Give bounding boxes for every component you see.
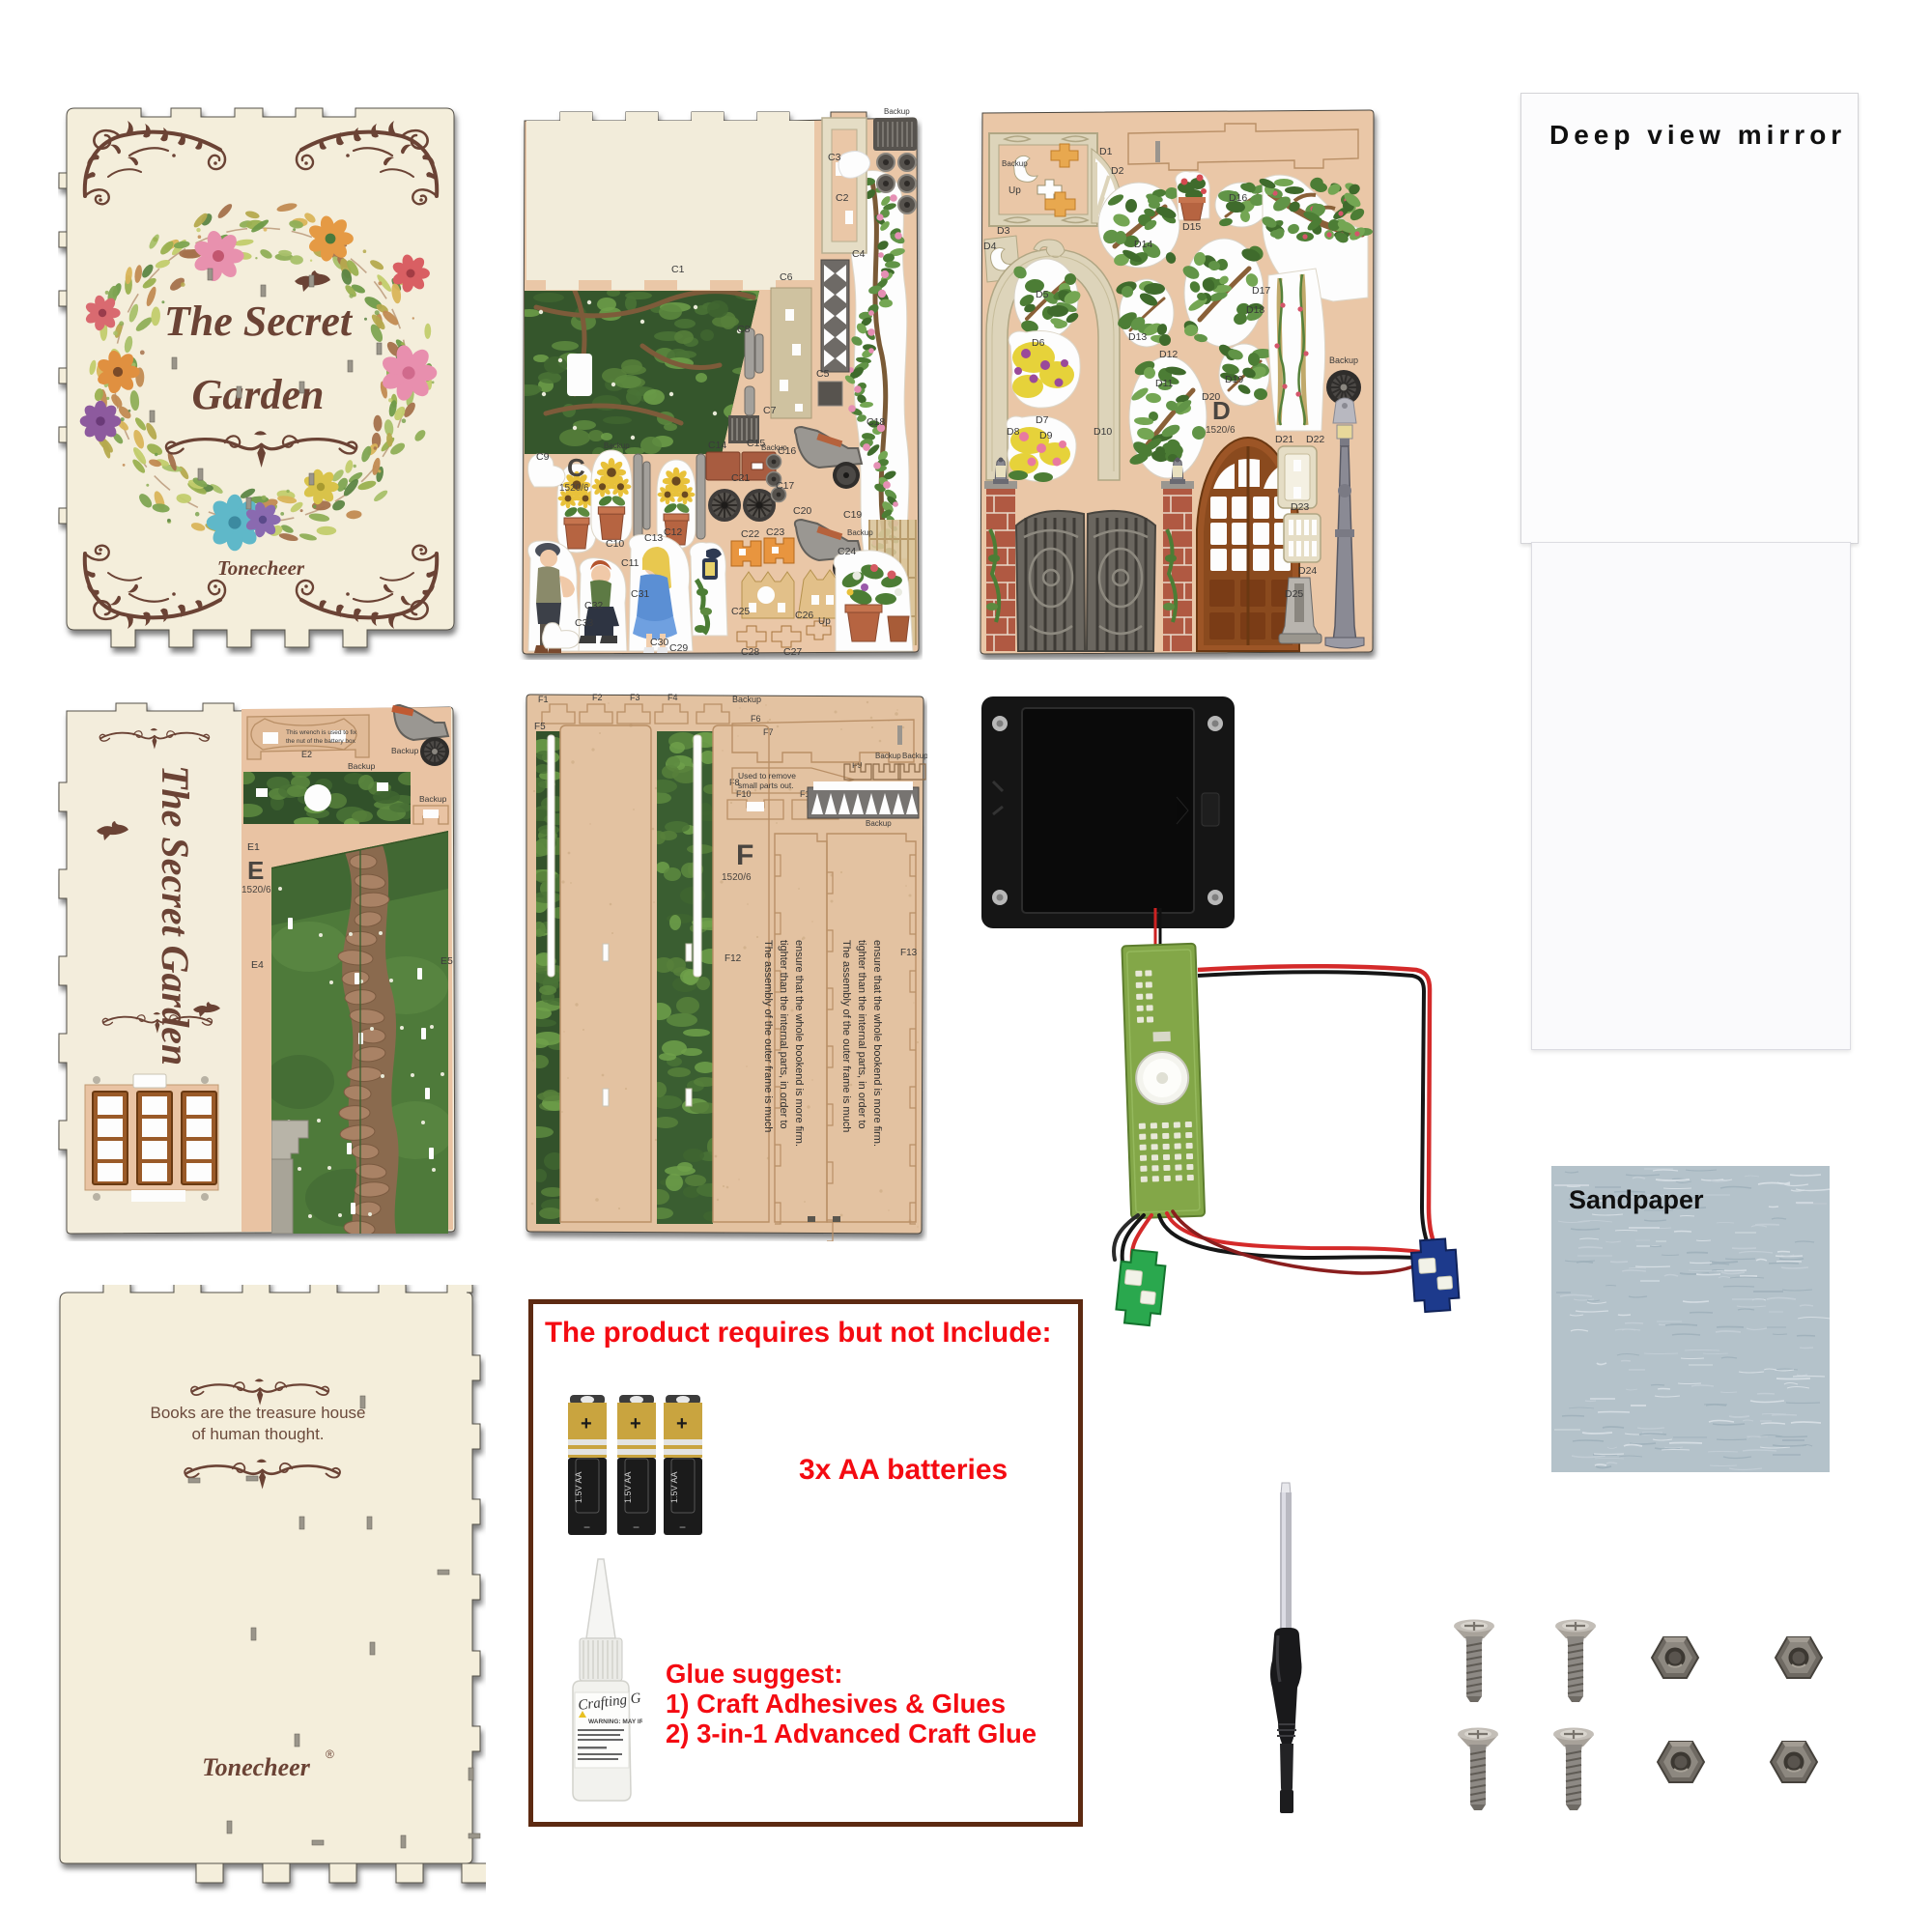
svg-text:D24: D24 (1298, 565, 1317, 577)
svg-text:Backup: Backup (761, 443, 787, 452)
svg-text:F4: F4 (668, 693, 678, 702)
svg-text:+: + (630, 1413, 641, 1435)
svg-text:Backup: Backup (1002, 159, 1028, 168)
svg-text:ensure that the whole bookend: ensure that the whole bookend is more fi… (871, 940, 883, 1147)
svg-text:The Secret: The Secret (164, 298, 354, 345)
svg-text:D16: D16 (1229, 192, 1247, 204)
svg-text:The assembly of the outer fram: The assembly of the outer frame is much (762, 940, 774, 1132)
svg-text:Backup: Backup (348, 761, 376, 771)
svg-text:Tonecheer: Tonecheer (217, 556, 305, 580)
svg-text:Backup: Backup (866, 819, 892, 828)
svg-text:C7: C7 (763, 405, 777, 416)
svg-text:D23: D23 (1291, 501, 1309, 513)
svg-text:D8: D8 (1007, 426, 1020, 438)
svg-text:of human thought.: of human thought. (191, 1425, 324, 1443)
svg-text:+: + (581, 1413, 592, 1435)
svg-text:Books are the treasure house: Books are the treasure house (150, 1404, 365, 1422)
svg-text:C9: C9 (536, 451, 550, 463)
svg-text:D17: D17 (1252, 285, 1270, 297)
svg-text:D4: D4 (983, 241, 997, 252)
svg-text:C12: C12 (664, 526, 682, 538)
svg-text:Up: Up (1009, 185, 1021, 196)
svg-text:1.5V AA: 1.5V AA (574, 1471, 583, 1503)
svg-text:Tonecheer: Tonecheer (202, 1753, 311, 1781)
svg-text:tighter than the internal part: tighter than the internal parts, in orde… (778, 940, 789, 1129)
svg-text:C24: C24 (838, 546, 856, 557)
svg-text:−: − (633, 1520, 639, 1534)
svg-text:D9: D9 (1039, 430, 1053, 441)
svg-text:1520/6: 1520/6 (722, 872, 752, 883)
svg-text:C21: C21 (731, 472, 750, 484)
svg-text:®: ® (326, 1747, 334, 1761)
svg-text:C10: C10 (606, 538, 624, 550)
svg-text:Backup: Backup (902, 752, 927, 760)
svg-text:D3: D3 (997, 225, 1010, 237)
svg-text:E5: E5 (440, 955, 453, 967)
svg-text:C4: C4 (852, 248, 866, 260)
svg-text:Backup: Backup (604, 441, 630, 450)
svg-text:D2: D2 (1111, 165, 1124, 177)
svg-text:D1: D1 (1099, 146, 1113, 157)
svg-text:E4: E4 (251, 959, 264, 971)
svg-text:1.5V AA: 1.5V AA (623, 1471, 633, 1503)
svg-text:The assembly of the outer fram: The assembly of the outer frame is much (840, 940, 852, 1132)
svg-text:D18: D18 (1246, 304, 1264, 316)
svg-text:C11: C11 (621, 557, 639, 569)
svg-text:C3: C3 (828, 152, 841, 163)
svg-text:1520/6: 1520/6 (241, 885, 271, 895)
svg-text:C25: C25 (731, 606, 750, 617)
svg-text:D7: D7 (1036, 414, 1049, 426)
svg-text:1520/6: 1520/6 (1206, 425, 1236, 436)
svg-text:This wrench is used to fix: This wrench is used to fix (286, 729, 357, 736)
svg-text:D10: D10 (1094, 426, 1112, 438)
svg-text:E: E (247, 856, 264, 885)
svg-text:C13: C13 (644, 532, 663, 544)
svg-text:D6: D6 (1032, 337, 1045, 349)
svg-text:D12: D12 (1159, 349, 1178, 360)
svg-text:Backup: Backup (1329, 355, 1358, 365)
svg-text:D19: D19 (1225, 374, 1243, 385)
svg-text:Backup: Backup (847, 528, 873, 537)
svg-text:C: C (567, 453, 585, 482)
svg-text:C17: C17 (776, 480, 794, 492)
svg-text:Backup: Backup (732, 695, 761, 704)
svg-text:C6: C6 (780, 271, 793, 283)
svg-text:E1: E1 (247, 841, 260, 853)
svg-text:D14: D14 (1134, 239, 1152, 250)
svg-text:F3: F3 (630, 693, 640, 702)
svg-text:F2: F2 (592, 693, 603, 702)
svg-text:E2: E2 (301, 750, 312, 759)
svg-text:D5: D5 (1036, 289, 1049, 300)
svg-text:Backup: Backup (875, 752, 901, 760)
svg-text:WARNING: MAY IRRITATE EYES: WARNING: MAY IRRITATE EYES (588, 1719, 642, 1725)
svg-text:F5: F5 (534, 722, 546, 732)
svg-text:C26: C26 (795, 610, 813, 621)
svg-text:F10: F10 (736, 789, 752, 799)
svg-text:−: − (583, 1520, 590, 1534)
svg-text:C33: C33 (575, 617, 593, 629)
svg-text:D11: D11 (1155, 378, 1174, 389)
svg-text:Backup: Backup (419, 794, 447, 804)
svg-text:C18: C18 (867, 416, 885, 428)
svg-text:C30: C30 (650, 637, 668, 648)
svg-text:Up: Up (818, 616, 831, 627)
svg-text:1.5V AA: 1.5V AA (669, 1471, 679, 1503)
svg-text:Used to remove: Used to remove (738, 771, 796, 781)
svg-text:D: D (1212, 396, 1231, 425)
svg-text:tighter than the internal part: tighter than the internal parts, in orde… (856, 940, 867, 1129)
svg-text:C31: C31 (631, 588, 649, 600)
svg-text:C2: C2 (836, 192, 849, 204)
svg-text:F1: F1 (538, 695, 549, 704)
svg-text:C20: C20 (793, 505, 811, 517)
svg-text:C14: C14 (708, 440, 726, 451)
svg-text:+: + (676, 1413, 688, 1435)
svg-text:C8: C8 (737, 324, 751, 335)
svg-text:ensure that the whole bookend: ensure that the whole bookend is more fi… (793, 940, 805, 1147)
svg-text:C32: C32 (584, 600, 603, 611)
svg-text:C1: C1 (671, 264, 685, 275)
svg-text:D13: D13 (1128, 331, 1147, 343)
svg-text:F13: F13 (900, 948, 918, 958)
svg-text:D21: D21 (1275, 434, 1293, 445)
svg-text:C5: C5 (816, 368, 830, 380)
svg-text:Backup: Backup (391, 746, 419, 755)
svg-text:F6: F6 (751, 714, 761, 724)
svg-text:Sandpaper: Sandpaper (1569, 1185, 1704, 1214)
svg-text:F12: F12 (724, 953, 742, 964)
svg-text:Backup: Backup (884, 107, 910, 116)
svg-text:1520/6: 1520/6 (559, 483, 589, 494)
svg-text:D22: D22 (1306, 434, 1324, 445)
svg-text:C23: C23 (766, 526, 784, 538)
svg-text:Garden: Garden (192, 371, 325, 418)
svg-text:D25: D25 (1285, 588, 1303, 600)
svg-text:the nut of the battery box: the nut of the battery box (286, 738, 356, 745)
svg-text:F: F (736, 839, 753, 871)
svg-text:C27: C27 (783, 646, 802, 658)
svg-text:C22: C22 (741, 528, 759, 540)
svg-text:D15: D15 (1182, 221, 1201, 233)
svg-text:C19: C19 (843, 509, 862, 521)
svg-text:C28: C28 (741, 646, 759, 658)
svg-text:−: − (679, 1520, 686, 1534)
svg-text:C29: C29 (669, 642, 688, 654)
